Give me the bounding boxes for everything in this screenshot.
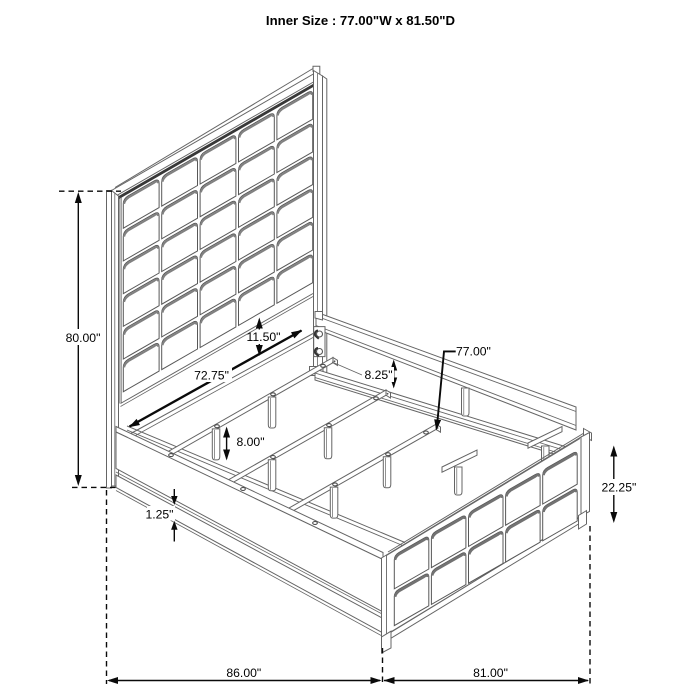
svg-text:86.00": 86.00": [226, 666, 261, 680]
svg-text:8.25": 8.25": [364, 368, 392, 382]
svg-text:77.00": 77.00": [456, 345, 491, 359]
svg-text:72.75": 72.75": [194, 369, 229, 383]
svg-text:Inner Size : 77.00"W x 81.50"D: Inner Size : 77.00"W x 81.50"D: [266, 13, 455, 28]
svg-text:81.00": 81.00": [473, 666, 508, 680]
svg-text:8.00": 8.00": [236, 435, 264, 449]
svg-text:1.25": 1.25": [145, 508, 173, 522]
svg-text:22.25": 22.25": [601, 481, 636, 495]
svg-text:80.00": 80.00": [66, 331, 101, 345]
svg-text:11.50": 11.50": [247, 330, 281, 344]
